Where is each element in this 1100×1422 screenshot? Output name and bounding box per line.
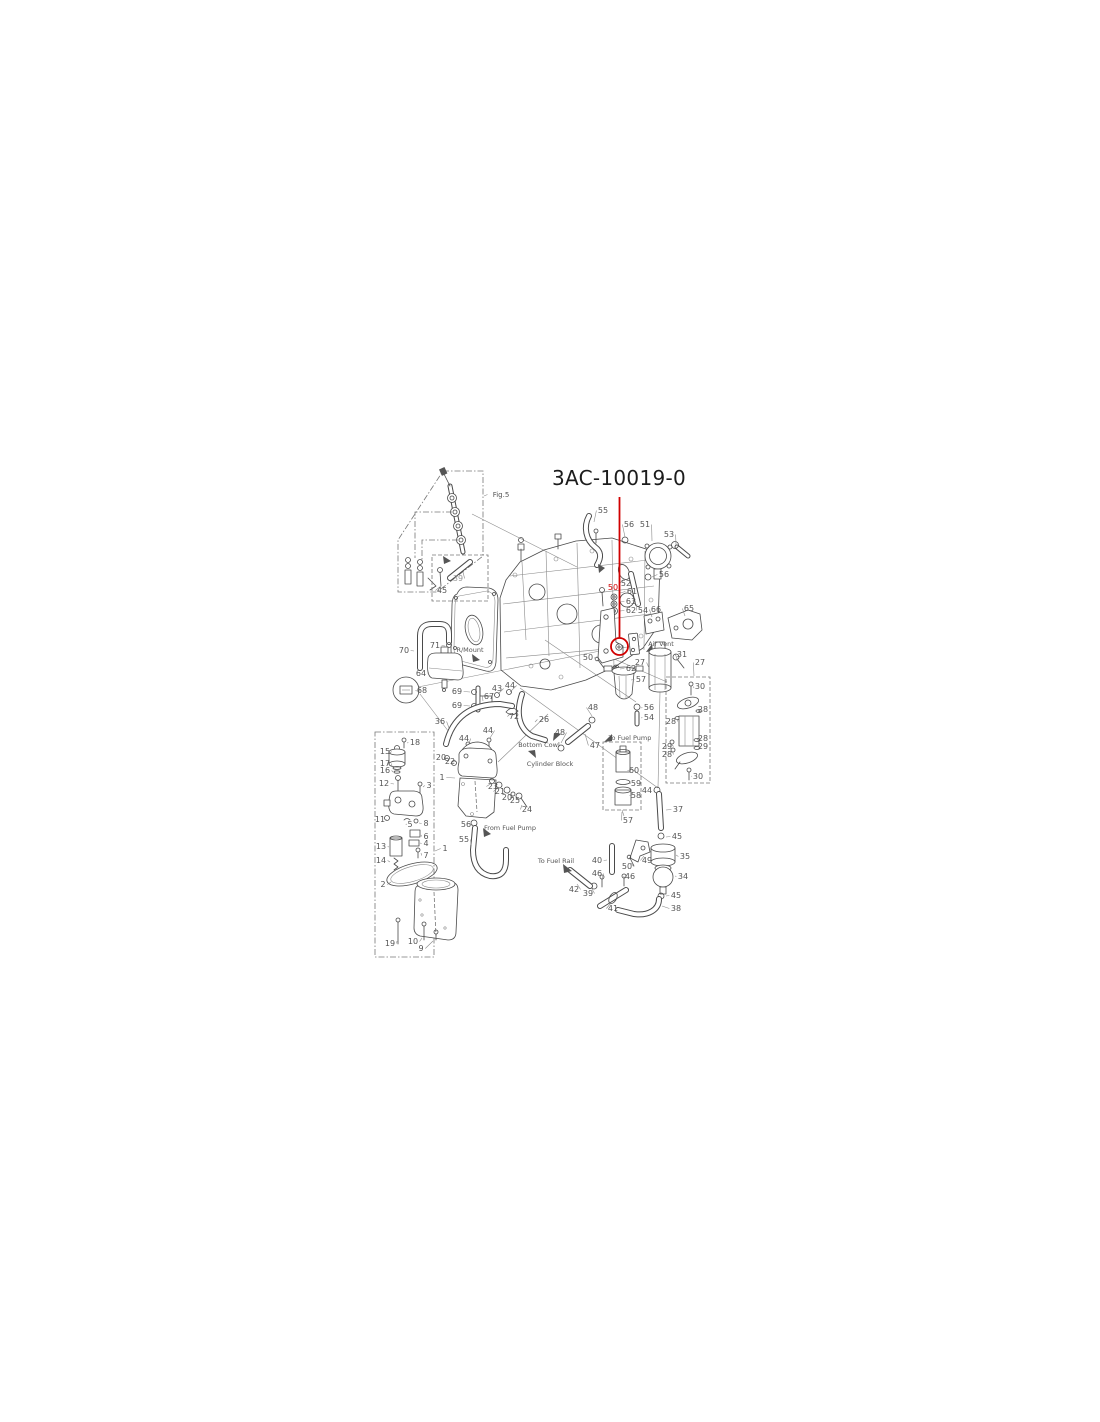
label-leader [693, 663, 694, 677]
diagram-stage: 3AC-10019-0 [0, 0, 1100, 1422]
part-label: 45 [672, 832, 682, 841]
label-leader [662, 906, 669, 909]
label-leader [463, 572, 465, 579]
bolt-53 [672, 542, 689, 557]
part-label: 57 [623, 816, 633, 825]
part-label: 71 [430, 641, 440, 650]
part-label: 45 [671, 891, 681, 900]
label-leader [641, 708, 642, 709]
part-label: 70 [399, 646, 409, 655]
part-label: 39 [583, 889, 593, 898]
part-label: 50 [608, 583, 618, 592]
fig5-detail-box [398, 467, 488, 601]
label-leader [464, 706, 470, 707]
part-label: 56 [644, 703, 654, 712]
part-label: 64 [416, 669, 426, 678]
part-label: 5 [407, 820, 412, 829]
part-label: 14 [376, 856, 386, 865]
part-label: 38 [671, 904, 681, 913]
part-label: 68 [417, 686, 427, 695]
cylinder-block-arrow [528, 750, 536, 758]
bolt-45 [438, 568, 443, 587]
label-leader [641, 718, 642, 719]
part-label: 41 [608, 904, 618, 913]
label-leader [666, 837, 670, 838]
parts-diagram: Fig.5394555565153525650616362546665Air V… [0, 0, 1100, 1422]
label-leader [620, 602, 624, 603]
part-label: 31 [677, 650, 687, 659]
label-leader [691, 776, 692, 777]
hose-55-top [586, 516, 605, 573]
label-leader [621, 812, 622, 821]
part-label: 57 [636, 675, 646, 684]
part-label: 24 [522, 805, 532, 814]
part-label: 25 [510, 796, 520, 805]
label-leader [442, 646, 445, 647]
label-leader [535, 720, 537, 723]
part-label: 34 [678, 872, 688, 881]
label-leader [666, 896, 669, 897]
part-label: 27 [635, 658, 645, 667]
part-label: Fig.5 [493, 491, 510, 499]
label-leader [391, 784, 394, 785]
part-label: 1 [442, 844, 447, 853]
part-label: 11 [375, 815, 385, 824]
part-label: 26 [539, 715, 549, 724]
part-label: 65 [684, 604, 694, 613]
label-leader [666, 810, 671, 811]
part-label: 44 [483, 726, 493, 735]
part-label: 44 [642, 786, 652, 795]
part-label: 10 [408, 937, 418, 946]
part-label: 18 [410, 738, 420, 747]
clip-56-c [634, 704, 640, 710]
part-label: 44 [505, 681, 515, 690]
part-label: 43 [492, 684, 502, 693]
part-label: 15 [380, 747, 390, 756]
part-label: 35 [680, 852, 690, 861]
part-label: 8 [423, 819, 428, 828]
rail-bolts [405, 558, 436, 591]
part-label: 69 [452, 701, 462, 710]
label-leader [675, 876, 676, 877]
part-label: Bottom Cowl [518, 741, 560, 749]
part-label: 30 [693, 772, 703, 781]
mount-bracket-65 [668, 610, 702, 640]
label-leader [386, 820, 387, 821]
part-label: To Fuel Pump [608, 734, 652, 742]
part-label: 55 [598, 506, 608, 515]
label-leader [447, 722, 449, 729]
label-leader [676, 855, 678, 857]
label-leader [604, 860, 607, 861]
bracket-66 [644, 612, 664, 634]
part-label: 36 [435, 717, 445, 726]
label-leader [446, 778, 455, 779]
part-label: 13 [376, 842, 386, 851]
part-label: 27 [695, 658, 705, 667]
part-label: 19 [385, 939, 395, 948]
label-leader [423, 786, 425, 788]
part-label: 28 [698, 705, 708, 714]
label-leader [620, 592, 625, 594]
label-leader [425, 941, 433, 949]
part-label: R/Mount [456, 646, 484, 654]
part-label: From Fuel Pump [484, 824, 536, 832]
part-label: 56 [461, 820, 471, 829]
label-leader [631, 680, 634, 681]
part-label: 44 [459, 734, 469, 743]
part-label: 63 [626, 597, 636, 606]
label-leader [420, 843, 422, 844]
part-label: 59 [631, 779, 641, 788]
part-label: 54 [638, 606, 648, 615]
part-label: To Fuel Rail [537, 857, 574, 865]
pump-exploded-box-27 [666, 677, 710, 783]
fuel-line-assembly [563, 787, 675, 914]
part-label: 2 [380, 880, 385, 889]
part-label: 28 [666, 717, 676, 726]
part-label: 46 [625, 872, 635, 881]
label-leader [420, 938, 422, 942]
label-leader [594, 511, 596, 523]
label-leader [421, 835, 422, 837]
part-label: 72 [509, 712, 519, 721]
part-label: 53 [664, 530, 674, 539]
part-label: 46 [592, 869, 602, 878]
part-label: 56 [659, 570, 669, 579]
part-label: 49 [642, 856, 652, 865]
clip-56-d [471, 820, 477, 826]
part-label: 28 [662, 750, 672, 759]
part-label: 48 [555, 728, 565, 737]
tank-assembly-1 [445, 738, 528, 876]
grommet-48-a [589, 717, 595, 723]
part-label: Cylinder Block [527, 760, 574, 768]
part-label: 50 [583, 653, 593, 662]
part-label: 12 [379, 779, 389, 788]
detail-circle-68 [393, 677, 419, 703]
fuel-rail [439, 467, 465, 552]
part-label: 37 [673, 805, 683, 814]
label-leader [620, 611, 624, 612]
part-label: Air Vent [648, 640, 674, 648]
label-leader [388, 847, 389, 848]
part-label: 47 [590, 741, 600, 750]
part-label: 69 [452, 687, 462, 696]
label-leader [435, 849, 441, 852]
part-label: 45 [437, 586, 447, 595]
hose-36 [446, 704, 512, 744]
part-label: 48 [588, 703, 598, 712]
label-leader [464, 692, 470, 693]
part-label: 40 [592, 856, 602, 865]
label-leader [407, 743, 408, 744]
part-label: 9 [418, 944, 423, 953]
part-label: 39 [453, 574, 463, 583]
part-label: 62 [626, 664, 636, 673]
part-label: 3 [426, 781, 431, 790]
label-leader [411, 651, 414, 652]
part-label: 67 [484, 692, 494, 701]
plate-27 [628, 633, 639, 655]
part-label: 55 [459, 835, 469, 844]
label-leader [392, 771, 393, 773]
label-leader [484, 495, 488, 497]
part-label: 50 [622, 862, 632, 871]
fuel-pump-assembly-27 [649, 642, 671, 692]
part-label: 1 [439, 773, 444, 782]
part-label: 42 [569, 885, 579, 894]
label-leader [421, 853, 422, 856]
part-label: 22 [445, 757, 455, 766]
label-leader [388, 861, 390, 863]
part-label: 66 [651, 605, 661, 614]
grommet-50 [616, 644, 622, 650]
part-label: 60 [629, 766, 639, 775]
label-leader [672, 751, 674, 755]
label-leader [585, 734, 588, 746]
rmount-arrow [472, 654, 480, 662]
part-label: 62 [626, 606, 636, 615]
part-label: 58 [631, 791, 641, 800]
part-label: 7 [423, 851, 428, 860]
part-label: 61 [627, 587, 637, 596]
clip-56-b [645, 574, 651, 580]
part-label: 16 [380, 766, 390, 775]
part-label: 51 [640, 520, 650, 529]
part-label: 56 [624, 520, 634, 529]
label-leader [693, 687, 694, 689]
part-label: 54 [644, 713, 654, 722]
part-label: 29 [698, 742, 708, 751]
part-label: 30 [695, 682, 705, 691]
label-leader [419, 823, 422, 824]
part-label: 4 [423, 839, 428, 848]
